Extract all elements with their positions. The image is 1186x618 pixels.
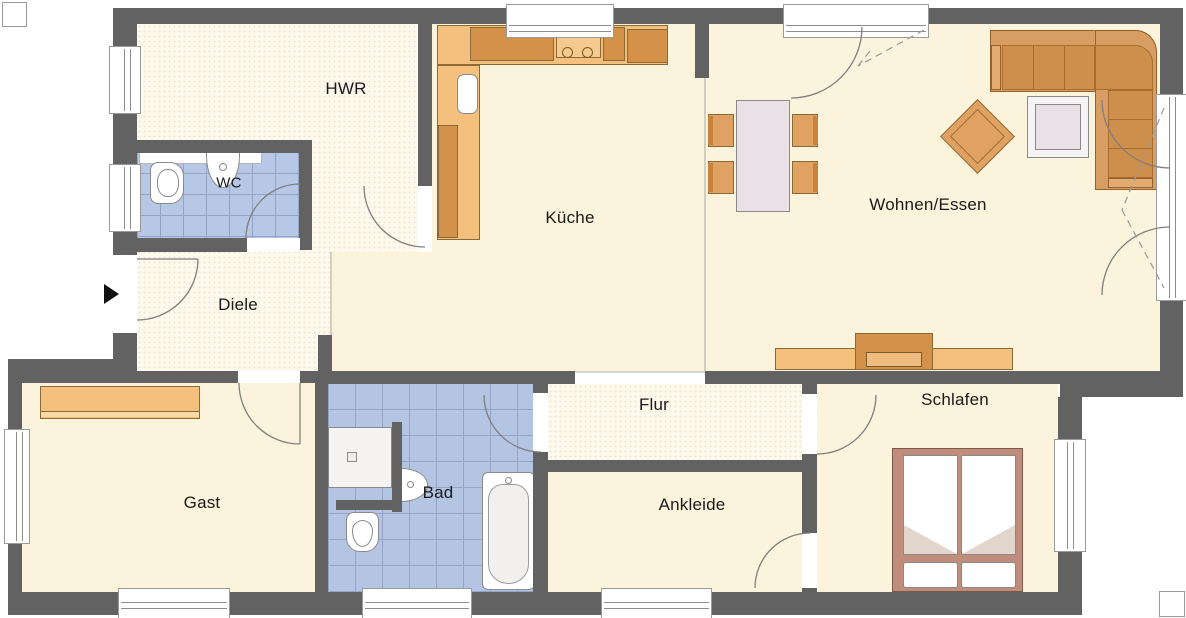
washbasin-drain-icon <box>219 163 227 171</box>
kitchen-cabinet <box>438 125 458 238</box>
door-opening-bad <box>533 393 548 452</box>
floor-kueche-south <box>330 252 432 371</box>
dining-table <box>736 100 790 212</box>
floorplan-canvas: HWR WC Küche Wohnen/Essen Diele Gast Bad… <box>0 0 1186 618</box>
chair-backrest <box>813 116 818 145</box>
sofa-armrest <box>1108 178 1153 188</box>
corner-mark <box>1159 591 1185 617</box>
chair-backrest <box>708 163 713 192</box>
sofa-cushions <box>1002 45 1095 90</box>
chair-backrest <box>708 116 713 145</box>
shower-drain-icon <box>347 452 357 462</box>
wall-flur-north-stub <box>548 371 575 384</box>
room-label-flur: Flur <box>639 395 669 415</box>
window-ankleide-south <box>601 588 712 618</box>
window-wc-west <box>109 164 141 232</box>
floor-ankleide <box>548 472 802 592</box>
wall-gast-bad <box>315 383 328 592</box>
corner-mark <box>2 2 27 27</box>
toilet-bowl <box>157 169 179 197</box>
pillow <box>961 562 1016 588</box>
wall-bad-north <box>315 371 533 384</box>
shower <box>328 427 392 488</box>
burner-icon <box>562 47 573 58</box>
floor-hwr-strip <box>312 140 418 252</box>
room-label-hwr: HWR <box>325 79 366 99</box>
french-door-east <box>1156 94 1186 301</box>
window-bad-south <box>362 588 472 618</box>
window-schlafen-east <box>1054 439 1086 552</box>
room-label-gast: Gast <box>184 493 221 513</box>
burner-icon <box>582 47 593 58</box>
door-opening-wc <box>247 238 300 252</box>
window-kueche-north <box>506 4 614 38</box>
washbasin-drain-icon <box>407 481 414 488</box>
wall-exterior-top <box>113 8 1183 24</box>
room-label-schlafen: Schlafen <box>921 390 989 410</box>
entrance-arrow-icon <box>104 284 119 304</box>
wall-bad-partition-horizontal <box>336 500 392 510</box>
wall-stub-kueche-wohnen <box>695 24 709 78</box>
room-label-wc: WC <box>216 175 241 192</box>
window-gast-south <box>118 588 230 618</box>
room-label-ankleide: Ankleide <box>659 495 726 515</box>
room-label-bad: Bad <box>423 483 454 503</box>
room-label-diele: Diele <box>218 295 258 315</box>
pillow <box>903 562 958 588</box>
sofa-corner-cushion <box>1095 45 1153 90</box>
wall-flur-ankleide <box>533 460 817 472</box>
wall-wc-east <box>299 140 312 250</box>
tv-sideboard-right <box>932 348 1013 370</box>
room-label-wohnen: Wohnen/Essen <box>869 195 986 215</box>
bathtub-basin <box>488 484 529 584</box>
sideboard-gast-edge <box>41 411 199 417</box>
window-gast-west <box>4 429 30 544</box>
kitchen-sink <box>457 74 478 114</box>
door-opening-gast <box>238 371 300 383</box>
wall-middle <box>705 371 1160 384</box>
floor-hwr <box>137 24 418 140</box>
terrace-door-north <box>783 4 929 38</box>
chair-backrest <box>813 163 818 192</box>
wall-hwr-wc <box>137 140 312 153</box>
coffee-table-top <box>1035 104 1081 150</box>
door-opening-schlafen <box>802 394 817 454</box>
floor-flur <box>548 384 802 460</box>
door-opening-ankleide <box>802 533 817 588</box>
sofa-cushions <box>1108 90 1153 178</box>
tv-sideboard-left <box>775 348 856 370</box>
fridge <box>627 29 668 63</box>
bathtub-faucet-icon <box>505 477 512 484</box>
sofa-armrest <box>991 45 1001 90</box>
tv-sideboard-drawer <box>866 352 922 367</box>
door-opening-hwr <box>418 186 432 248</box>
window-hwr-west <box>109 46 141 114</box>
wall-bad-partition-vertical <box>392 422 402 512</box>
room-label-kueche: Küche <box>545 208 594 228</box>
